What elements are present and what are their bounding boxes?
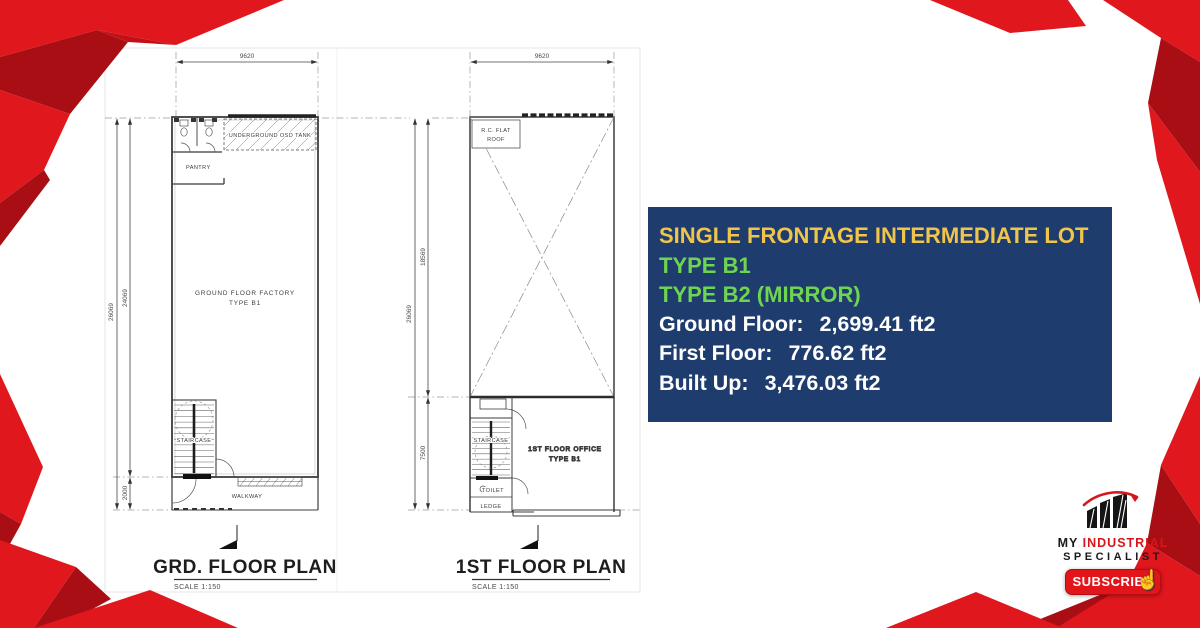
- ground-floor-label: Ground Floor:: [659, 310, 804, 340]
- logo-specialist: SPECIALIST: [1040, 551, 1186, 563]
- border-facet: [0, 374, 43, 524]
- ground-floor-area-row: Ground Floor: 2,699.41 ft2: [659, 310, 1102, 340]
- logo-wordmark: MY INDUSTRIAL: [1040, 536, 1186, 550]
- built-up-label: Built Up:: [659, 369, 749, 399]
- lot-title: SINGLE FRONTAGE INTERMEDIATE LOT: [659, 221, 1102, 251]
- first-floor-label: First Floor:: [659, 339, 772, 369]
- brand-block: MY INDUSTRIAL SPECIALIST SUBSCRIBE ☝: [1040, 490, 1186, 595]
- logo-my: MY: [1058, 536, 1079, 550]
- first-floor-area-row: First Floor: 776.62 ft2: [659, 339, 1102, 369]
- hand-cursor-icon: ☝: [1136, 568, 1160, 592]
- info-panel: SINGLE FRONTAGE INTERMEDIATE LOT TYPE B1…: [648, 207, 1112, 422]
- border-cluster-top-left: [0, 0, 284, 246]
- border-cluster-bottom-left: [0, 374, 238, 628]
- type-b1-label: TYPE B1: [659, 251, 1102, 281]
- built-up-value: 3,476.03 ft2: [765, 369, 881, 399]
- border-facet: [930, 0, 1086, 33]
- border-facet: [1103, 0, 1200, 62]
- ground-floor-value: 2,699.41 ft2: [820, 310, 936, 340]
- industrial-buildings-icon: [1081, 490, 1145, 530]
- border-facet: [886, 592, 1063, 628]
- logo-industrial: INDUSTRIAL: [1083, 536, 1169, 550]
- type-b2-label: TYPE B2 (MIRROR): [659, 280, 1102, 310]
- flyer-canvas: 9620 26069 24069 2000: [0, 0, 1200, 628]
- built-up-area-row: Built Up: 3,476.03 ft2: [659, 369, 1102, 399]
- first-floor-value: 776.62 ft2: [788, 339, 886, 369]
